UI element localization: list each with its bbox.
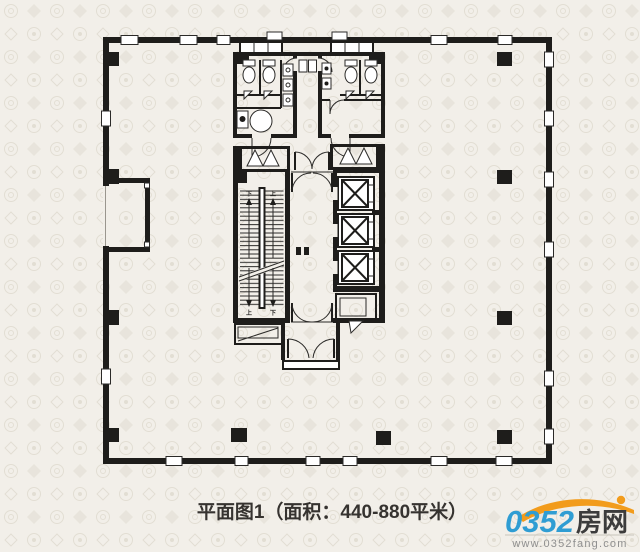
stair-up-label: 上: [246, 309, 252, 317]
elevator-car: [333, 214, 375, 247]
plan-caption: 平面图1（面积：440-880平米）: [197, 500, 467, 523]
toilet-icon: [263, 67, 275, 83]
sink-icon: [283, 79, 293, 91]
site-logo: 0352 房网 www.0352fang.com: [505, 496, 634, 550]
elevator-car: [333, 251, 375, 284]
toilet-icon: [243, 60, 255, 66]
toilet-icon: [345, 60, 357, 66]
stair-up-label: 上: [270, 190, 276, 198]
elevator-car: [333, 177, 375, 210]
toilet-icon: [263, 60, 275, 66]
logo-number: 0352: [505, 504, 574, 539]
sink-icon: [283, 64, 293, 76]
floorplan-canvas: 下 上 上 下: [0, 0, 640, 552]
stair-rail: [260, 188, 265, 308]
entrance-threshold: [283, 361, 339, 369]
logo-url: www.0352fang.com: [511, 538, 627, 550]
sun-icon: [617, 496, 625, 504]
toilet-icon: [345, 67, 357, 83]
stair-down-label: 下: [270, 310, 276, 317]
toilet-icon: [365, 67, 377, 83]
sink-icon: [283, 94, 293, 106]
toilet-icon: [365, 60, 377, 66]
logo-name: 房网: [576, 507, 628, 537]
stair-down-label: 下: [246, 191, 252, 198]
stair-treads: [265, 190, 284, 306]
stair-core: 下 上 上 下: [233, 172, 290, 323]
toilet-icon: [243, 67, 255, 83]
floorplan-page: 下 上 上 下: [0, 0, 640, 552]
round-basin-icon: [250, 110, 272, 132]
